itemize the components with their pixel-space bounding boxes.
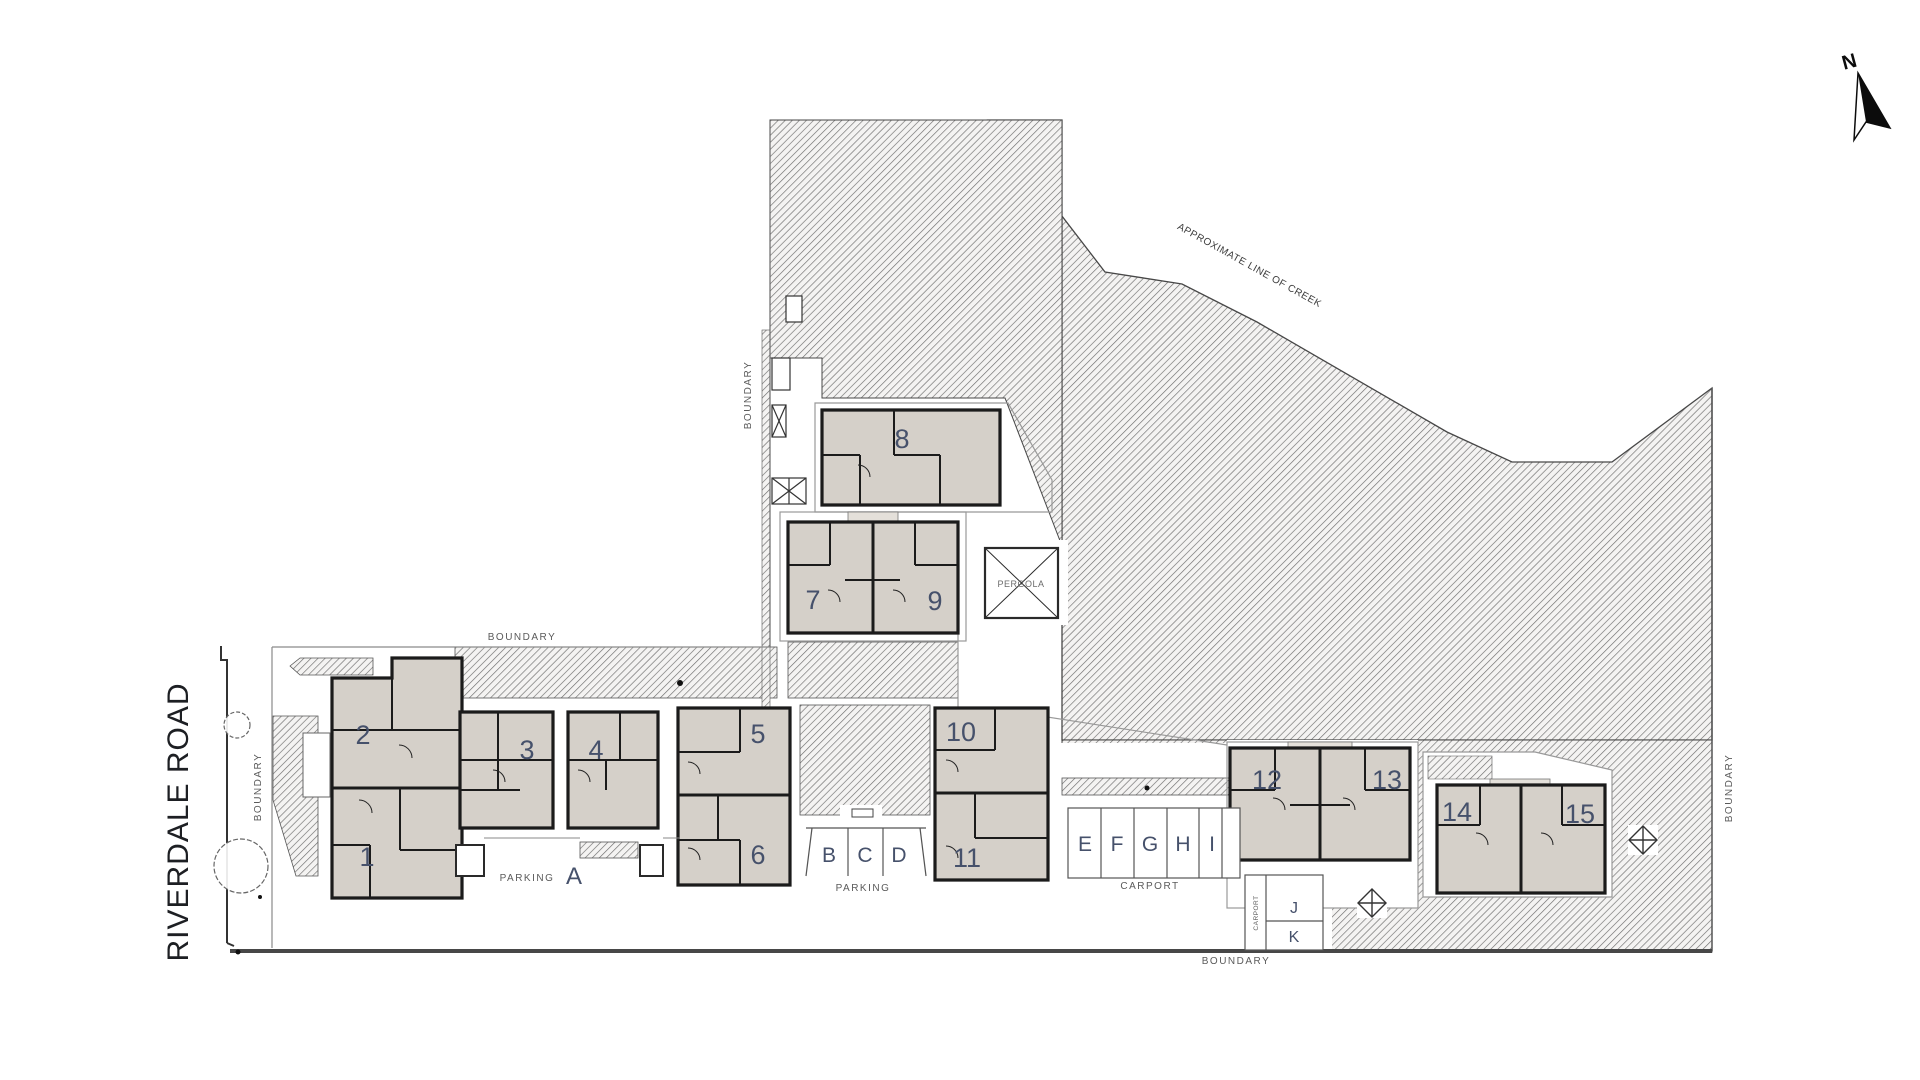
building-unit-3	[460, 712, 553, 828]
unit-label-12: 12	[1252, 765, 1282, 795]
bay-letter-g: G	[1142, 833, 1158, 856]
bay-letter-a: A	[566, 863, 582, 890]
boundary-label-top: BOUNDARY	[488, 632, 557, 643]
site-plan-page: PERGOLA	[0, 0, 1920, 1080]
bay-letter-c: C	[857, 844, 872, 867]
carport-label-ei: CARPORT	[1120, 881, 1179, 892]
north-label: N	[1840, 50, 1860, 75]
unit-label-7: 7	[805, 585, 820, 615]
bay-letter-b: B	[822, 844, 836, 867]
pergola-label: PERGOLA	[997, 579, 1044, 589]
bay-letter-k: K	[1289, 929, 1300, 946]
unit-label-15: 15	[1565, 799, 1595, 829]
boundary-label-right: BOUNDARY	[1724, 754, 1735, 823]
parking-label-a: PARKING	[500, 873, 555, 884]
pergola: PERGOLA	[975, 540, 1068, 625]
bay-letter-d: D	[891, 844, 906, 867]
unit-label-10: 10	[946, 717, 976, 747]
riverdale-road-edge	[221, 646, 234, 946]
building-units-12-13	[1230, 742, 1410, 860]
building-outline	[332, 658, 462, 898]
unit-label-4: 4	[588, 735, 603, 765]
unit-label-11: 11	[953, 843, 981, 873]
unit-label-1: 1	[359, 842, 374, 872]
clothes-hoist-icon	[1628, 825, 1658, 855]
unit-label-3: 3	[519, 735, 534, 765]
building-unit-4	[568, 712, 658, 828]
unit1-porch	[303, 733, 330, 797]
unit-label-14: 14	[1442, 797, 1472, 827]
unit-label-2: 2	[355, 720, 370, 750]
site-plan-drawing: PERGOLA	[0, 0, 1920, 1080]
bay-letter-f: F	[1111, 833, 1124, 856]
parking-label-bcd: PARKING	[836, 883, 891, 894]
bay-letter-j: J	[1290, 900, 1298, 917]
building-unit-8	[822, 410, 1000, 505]
tree-icon	[224, 712, 250, 738]
unit-label-9: 9	[927, 586, 942, 616]
carport-label-jk: CARPORT	[1253, 895, 1260, 930]
unit-label-5: 5	[750, 719, 765, 749]
bay-letter-h: H	[1175, 833, 1190, 856]
building-units-1-2	[332, 658, 462, 898]
boundary-label-left: BOUNDARY	[253, 753, 264, 822]
road-name-label: RIVERDALE ROAD	[162, 682, 195, 961]
boundary-label-bottom: BOUNDARY	[1202, 956, 1271, 967]
unit-label-8: 8	[894, 424, 909, 454]
tree-icon	[214, 839, 268, 893]
unit-label-13: 13	[1372, 765, 1402, 795]
bay-letter-e: E	[1078, 833, 1092, 856]
bay-letter-i: I	[1209, 833, 1215, 856]
north-arrow-icon: N	[1840, 50, 1890, 140]
clothes-hoist-icon	[1357, 888, 1387, 918]
building-units-5-6	[678, 708, 790, 885]
building-outline	[460, 712, 553, 828]
boundary-label-upper-left: BOUNDARY	[743, 361, 754, 430]
building-outline	[822, 410, 1000, 505]
unit-label-6: 6	[750, 840, 765, 870]
